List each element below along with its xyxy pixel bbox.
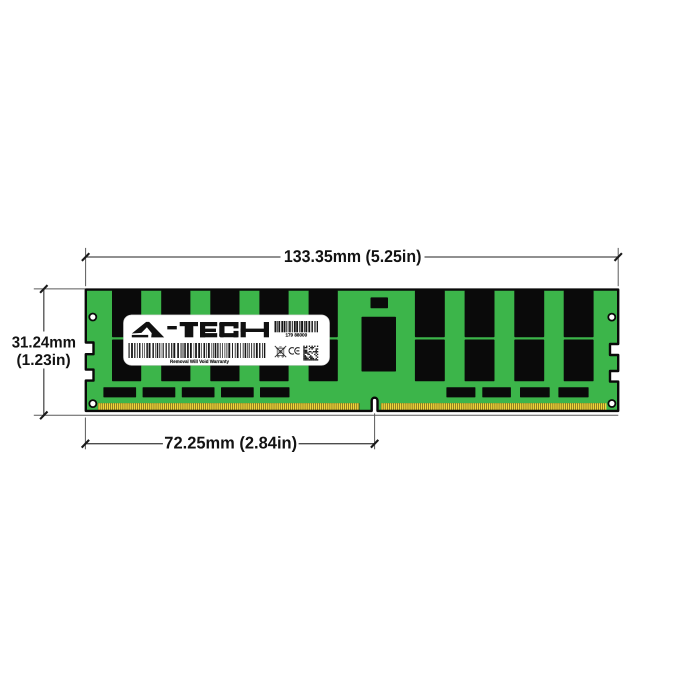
svg-text:Removal Will Void Warranty: Removal Will Void Warranty [170, 359, 229, 365]
svg-text:(1.23in): (1.23in) [17, 352, 71, 369]
svg-text:31.24mm: 31.24mm [12, 335, 76, 352]
svg-text:72.25mm (2.84in): 72.25mm (2.84in) [164, 433, 297, 452]
svg-text:179 88000: 179 88000 [285, 333, 307, 338]
svg-text:133.35mm (5.25in): 133.35mm (5.25in) [284, 247, 422, 266]
